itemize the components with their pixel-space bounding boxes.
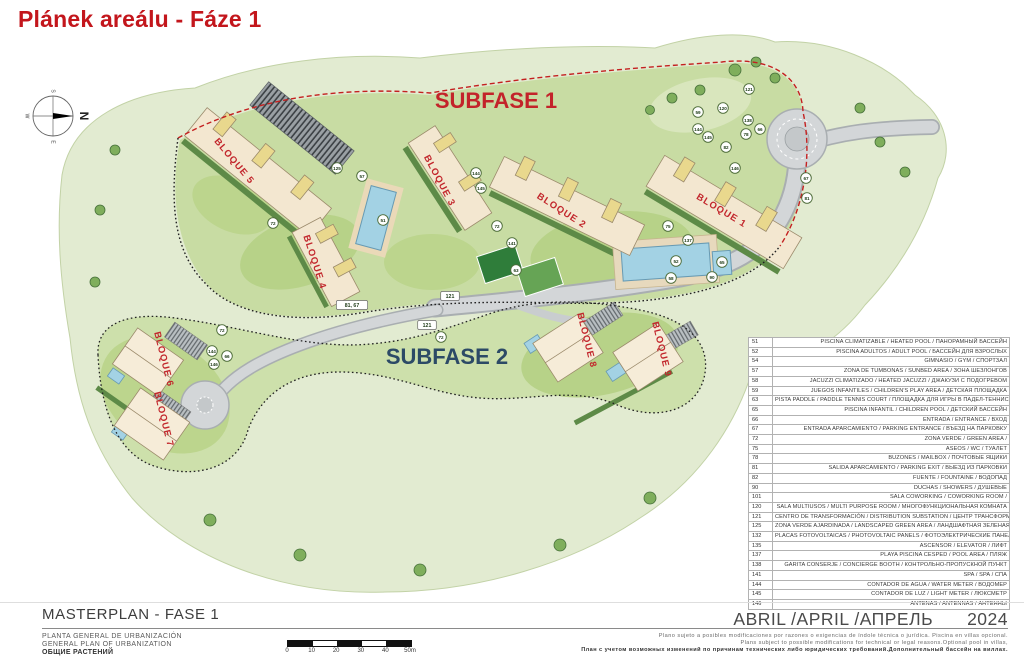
legend-row-number: 54 [749, 357, 773, 367]
legend-row-number: 66 [749, 415, 773, 425]
svg-text:65: 65 [719, 260, 725, 265]
legend-row: 82FUENTE / FOUNTAINE / ВОДОПАД [749, 473, 1010, 483]
plan-marker: 52 [671, 256, 682, 267]
legend-row: 51PISCINA CLIMATIZABLE / HEATED POOL / П… [749, 338, 1010, 348]
plan-marker: 145 [476, 183, 487, 194]
page-title: Plánek areálu - Fáze 1 [18, 6, 261, 33]
date-year: 2024 [967, 609, 1008, 630]
plan-marker: 145 [703, 132, 714, 143]
legend-row-description: ANTENAS / ANTENNAS / АНТЕННЫ [773, 599, 1010, 609]
legend-row-number: 144 [749, 580, 773, 590]
svg-text:67: 67 [803, 176, 809, 181]
legend-row-description: ENTRADA / ENTRANCE / ВХОД [773, 415, 1010, 425]
legend-row: 120SALA MULTIUSOS / MULTI PURPOSE ROOM /… [749, 502, 1010, 512]
svg-text:144: 144 [208, 349, 216, 354]
plan-marker: 72 [436, 332, 447, 343]
legend-table: 51PISCINA CLIMATIZABLE / HEATED POOL / П… [748, 337, 1010, 610]
footer-subtitle-en: GENERAL PLAN OF URBANIZATION [42, 641, 172, 648]
scale-labels: 01020304050m [287, 648, 410, 656]
scale-tick-label: 30 [357, 648, 364, 654]
legend-row-number: 67 [749, 425, 773, 435]
legend-row-number: 82 [749, 473, 773, 483]
legend-row-number: 51 [749, 338, 773, 348]
subfase1-label: SUBFASE 1 [435, 88, 557, 113]
svg-text:120: 120 [719, 106, 727, 111]
legend-row-description: ZONA VERDE / GREEN AREA / [773, 435, 1010, 445]
legend-row-description: PISTA PADDLE / PADDLE TENNIS COURT / ПЛО… [773, 396, 1010, 406]
legend-row-description: SPA / SPA / СПА [773, 570, 1010, 580]
svg-text:72: 72 [270, 221, 276, 226]
legend-row-number: 52 [749, 347, 773, 357]
legend-row-number: 65 [749, 405, 773, 415]
plan-marker: 138 [743, 115, 754, 126]
legend-row-description: PLAYA PISCINA CESPED / POOL AREA / ПЛЯЖ [773, 551, 1010, 561]
legend-row-number: 146 [749, 599, 773, 609]
scale-segment [362, 641, 387, 646]
plan-marker: 121 [441, 292, 460, 301]
legend-row-description: PISCINA INFANTIL / CHILDREN POOL / ДЕТСК… [773, 405, 1010, 415]
legend-row: 54GIMNASIO / GYM / СПОРТЗАЛ [749, 357, 1010, 367]
legend-row: 146ANTENAS / ANTENNAS / АНТЕННЫ [749, 599, 1010, 609]
legend-row: 52PISCINA ADULTOS / ADULT POOL / БАССЕЙН… [749, 347, 1010, 357]
plan-marker: 90 [707, 272, 718, 283]
legend-row: 90DUCHAS / SHOWERS / ДУШЕВЫЕ [749, 483, 1010, 493]
date-row: ABRIL /APRIL /АПРЕЛЬ 2024 [733, 609, 1008, 630]
legend-row: 67ENTRADA APARCAMIENTO / PARKING ENTRANC… [749, 425, 1010, 435]
plan-marker: 58 [666, 273, 677, 284]
legend-row-description: CONTADOR DE LUZ / LIGHT METER / ЛЮКСМЕТР [773, 590, 1010, 600]
plan-marker: 81 [802, 193, 813, 204]
svg-text:59: 59 [695, 110, 701, 115]
svg-text:90: 90 [709, 275, 715, 280]
svg-text:145: 145 [704, 135, 712, 140]
legend-row-description: PISCINA CLIMATIZABLE / HEATED POOL / ПАН… [773, 338, 1010, 348]
legend-row-number: 141 [749, 570, 773, 580]
plan-marker: 121 [744, 84, 755, 95]
plan-marker: 146 [730, 163, 741, 174]
compass-e: E [50, 140, 56, 144]
svg-text:66: 66 [757, 127, 763, 132]
legend-row-number: 135 [749, 541, 773, 551]
legend-row-number: 72 [749, 435, 773, 445]
legend-row: 59JUEGOS INFANTILES / CHILDREN'S PLAY AR… [749, 386, 1010, 396]
svg-text:63: 63 [513, 268, 519, 273]
legend-row-description: FUENTE / FOUNTAINE / ВОДОПАД [773, 473, 1010, 483]
compass-w: W [24, 114, 30, 119]
legend-row: 78BUZONES / MAILBOX / ПОЧТОВЫЕ ЯЩИКИ [749, 454, 1010, 464]
plan-marker: 66 [755, 124, 766, 135]
svg-text:144: 144 [472, 171, 480, 176]
legend-row: 66ENTRADA / ENTRANCE / ВХОД [749, 415, 1010, 425]
legend-row: 125ZONA VERDE AJARDINADA / LANDSCAPED GR… [749, 522, 1010, 532]
plan-marker: 144 [693, 124, 704, 135]
scale-tick-label: 0 [285, 648, 288, 654]
legend-row-description: JUEGOS INFANTILES / CHILDREN'S PLAY AREA… [773, 386, 1010, 396]
plan-marker: 59 [693, 107, 704, 118]
svg-text:81: 81 [804, 196, 810, 201]
legend-row-description: GIMNASIO / GYM / СПОРТЗАЛ [773, 357, 1010, 367]
svg-text:52: 52 [673, 259, 679, 264]
svg-text:121: 121 [446, 294, 455, 300]
plan-marker: 67 [801, 173, 812, 184]
svg-text:121: 121 [423, 323, 432, 329]
plan-marker: 57 [357, 171, 368, 182]
plan-marker: 72 [217, 325, 228, 336]
svg-text:145: 145 [477, 186, 485, 191]
legend-row-number: 90 [749, 483, 773, 493]
plan-marker: 120 [718, 103, 729, 114]
legend-row-number: 125 [749, 522, 773, 532]
plan-marker: 144 [471, 168, 482, 179]
legend-row-number: 121 [749, 512, 773, 522]
legend-row: 72ZONA VERDE / GREEN AREA / [749, 435, 1010, 445]
plan-marker: 144 [207, 346, 218, 357]
masterplan-title: MASTERPLAN - FASE 1 [42, 606, 219, 623]
plan-marker: 63 [511, 265, 522, 276]
footer-top-separator [0, 602, 1024, 603]
svg-text:72: 72 [494, 224, 500, 229]
legend-row-description: JACUZZI CLIMATIZADO / HEATED JACUZZI / Д… [773, 376, 1010, 386]
footer-subtitle-ru: ОБЩИЕ РАСТЕНИЙ [42, 649, 113, 656]
plan-marker: 65 [717, 257, 728, 268]
disclaimer-es: Plano sujeto a posibles modificaciones p… [659, 633, 1008, 639]
svg-text:58: 58 [668, 276, 674, 281]
plan-marker: 75 [663, 221, 674, 232]
legend-row-number: 138 [749, 561, 773, 571]
plan-marker: 125 [332, 163, 343, 174]
legend-row: 138GARITA CONSERJE / CONCIERGE BOOTH / К… [749, 561, 1010, 571]
legend-row-description: CENTRO DE TRANSFORMACIÓN / DISTRIBUTION … [773, 512, 1010, 522]
scale-tick-label: 50m [404, 648, 416, 654]
svg-text:137: 137 [684, 238, 692, 243]
legend-row-description: PISCINA ADULTOS / ADULT POOL / БАССЕЙН Д… [773, 347, 1010, 357]
disclaimer-ru: План с учетом возможных изменений по при… [581, 647, 1008, 653]
legend-row-description: DUCHAS / SHOWERS / ДУШЕВЫЕ [773, 483, 1010, 493]
legend-row: 141SPA / SPA / СПА [749, 570, 1010, 580]
legend-row: 75ASEOS / WC / ТУАЛЕТ [749, 444, 1010, 454]
plan-marker: 137 [683, 235, 694, 246]
svg-text:72: 72 [438, 335, 444, 340]
plan-marker: 141 [507, 238, 518, 249]
legend-row-number: 75 [749, 444, 773, 454]
legend-row-number: 137 [749, 551, 773, 561]
svg-text:138: 138 [744, 118, 752, 123]
scale-tick-label: 10 [308, 648, 315, 654]
scale-segment [337, 641, 362, 646]
plan-marker: 146 [209, 359, 220, 370]
scale-tick-label: 20 [333, 648, 340, 654]
legend-row: 57ZONA DE TUMBONAS / SUNBED AREA / ЗОНА … [749, 367, 1010, 377]
svg-text:141: 141 [508, 241, 516, 246]
legend-row-number: 81 [749, 464, 773, 474]
legend-row-description: PLACAS FOTOVOLTAICAS / PHOTOVOLTAIC PANE… [773, 532, 1010, 542]
plan-marker: 51 [378, 215, 389, 226]
plan-marker: 81, 67 [336, 301, 367, 310]
legend-row-number: 63 [749, 396, 773, 406]
legend-row-description: BUZONES / MAILBOX / ПОЧТОВЫЕ ЯЩИКИ [773, 454, 1010, 464]
svg-text:78: 78 [743, 132, 749, 137]
svg-text:125: 125 [333, 166, 341, 171]
legend-row: 81SALIDA APARCAMIENTO / PARKING EXIT / В… [749, 464, 1010, 474]
plan-marker: 72 [492, 221, 503, 232]
legend-row-description: ZONA VERDE AJARDINADA / LANDSCAPED GREEN… [773, 522, 1010, 532]
legend-row: 65PISCINA INFANTIL / CHILDREN POOL / ДЕТ… [749, 405, 1010, 415]
scale-segment [288, 641, 313, 646]
subfase2-label: SUBFASE 2 [386, 344, 508, 369]
scale-segment [386, 641, 411, 646]
footer-subtitle-es: PLANTA GENERAL DE URBANIZACIÓN [42, 633, 182, 640]
plan-marker: 66 [222, 351, 233, 362]
scale-bar [287, 640, 412, 647]
scale-tick-label: 40 [382, 648, 389, 654]
plan-marker: 121 [418, 321, 437, 330]
legend-row-number: 101 [749, 493, 773, 503]
svg-text:82: 82 [723, 145, 729, 150]
legend-row: 137PLAYA PISCINA CESPED / POOL AREA / ПЛ… [749, 551, 1010, 561]
legend-row-number: 132 [749, 532, 773, 542]
svg-text:51: 51 [380, 218, 386, 223]
legend-row: 121CENTRO DE TRANSFORMACIÓN / DISTRIBUTI… [749, 512, 1010, 522]
legend-row: 101SALA COWORKING / COWORKING ROOM / [749, 493, 1010, 503]
svg-text:121: 121 [745, 87, 753, 92]
legend-row-description: GARITA CONSERJE / CONCIERGE BOOTH / КОНТ… [773, 561, 1010, 571]
legend-row-description: ASCENSOR / ELEVATOR / ЛИФТ [773, 541, 1010, 551]
legend-row-number: 145 [749, 590, 773, 600]
legend-row-number: 120 [749, 502, 773, 512]
date-label: ABRIL /APRIL /АПРЕЛЬ [733, 609, 933, 630]
legend-row-number: 78 [749, 454, 773, 464]
scale-segment [313, 641, 338, 646]
legend-row: 135ASCENSOR / ELEVATOR / ЛИФТ [749, 541, 1010, 551]
svg-text:72: 72 [219, 328, 225, 333]
legend-row-description: ASEOS / WC / ТУАЛЕТ [773, 444, 1010, 454]
legend-row-description: CONTADOR DE AGUA / WATER METER / ВОДОМЕР [773, 580, 1010, 590]
svg-text:146: 146 [210, 362, 218, 367]
legend-row-description: ZONA DE TUMBONAS / SUNBED AREA / ЗОНА ШЕ… [773, 367, 1010, 377]
legend-row: 58JACUZZI CLIMATIZADO / HEATED JACUZZI /… [749, 376, 1010, 386]
svg-text:75: 75 [665, 224, 671, 229]
svg-text:66: 66 [224, 354, 230, 359]
compass-n: N [77, 112, 91, 121]
svg-text:144: 144 [694, 127, 702, 132]
plan-marker: 72 [268, 218, 279, 229]
svg-text:81, 67: 81, 67 [345, 303, 360, 309]
legend-row-number: 58 [749, 376, 773, 386]
legend-row: 144CONTADOR DE AGUA / WATER METER / ВОДО… [749, 580, 1010, 590]
svg-text:57: 57 [359, 174, 365, 179]
legend-row: 132PLACAS FOTOVOLTAICAS / PHOTOVOLTAIC P… [749, 532, 1010, 542]
legend-row: 63PISTA PADDLE / PADDLE TENNIS COURT / П… [749, 396, 1010, 406]
legend-row-description: SALIDA APARCAMIENTO / PARKING EXIT / ВЫЕ… [773, 464, 1010, 474]
legend-row-number: 59 [749, 386, 773, 396]
svg-text:146: 146 [731, 166, 739, 171]
legend-row-number: 57 [749, 367, 773, 377]
legend-row: 145CONTADOR DE LUZ / LIGHT METER / ЛЮКСМ… [749, 590, 1010, 600]
legend-row-description: ENTRADA APARCAMIENTO / PARKING ENTRANCE … [773, 425, 1010, 435]
compass-s: S [50, 89, 56, 93]
disclaimer-en: Plans subject to possible modifications … [740, 640, 1008, 646]
legend-row-description: SALA MULTIUSOS / MULTI PURPOSE ROOM / МН… [773, 502, 1010, 512]
plan-marker: 82 [721, 142, 732, 153]
legend-row-description: SALA COWORKING / COWORKING ROOM / [773, 493, 1010, 503]
plan-marker: 78 [741, 129, 752, 140]
legend-table-body: 51PISCINA CLIMATIZABLE / HEATED POOL / П… [749, 338, 1010, 610]
